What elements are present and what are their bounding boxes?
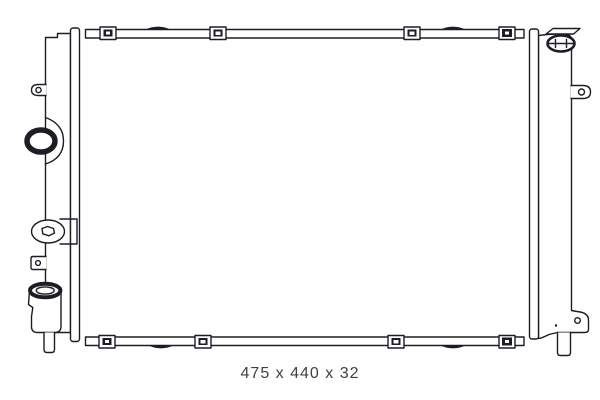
top-header-band: [86, 30, 525, 39]
right-mounting-peg: [558, 333, 571, 356]
bottom-bump: [440, 345, 466, 348]
right-tank-body: [539, 34, 589, 339]
mounting-clip: [499, 336, 515, 349]
radiator-technical-drawing: [0, 0, 600, 400]
mounting-clip: [499, 27, 515, 40]
filler-neck: [27, 130, 55, 152]
left-mounting-bracket: [31, 257, 46, 270]
radiator-diagram-page: 475 x 440 x 32: [0, 0, 600, 400]
top-bump: [145, 27, 171, 30]
right-tank-dot: [555, 324, 557, 326]
radiator-cap: [546, 29, 580, 52]
hose-rim: [30, 284, 60, 298]
left-mounting-ear: [32, 85, 47, 96]
left-side-plate: [71, 28, 80, 342]
dimensions-caption: 475 x 440 x 32: [0, 365, 600, 385]
cap-top-plate: [546, 29, 580, 35]
mounting-clip: [210, 27, 226, 40]
bottom-bump: [148, 345, 174, 348]
right-mounting-ear: [571, 86, 591, 99]
right-tank: [539, 34, 589, 356]
hose-connection: [29, 284, 62, 353]
hose-peg: [44, 333, 55, 353]
mounting-clip: [100, 27, 116, 40]
top-bump: [440, 27, 466, 30]
right-side-plate: [530, 29, 539, 339]
mounting-clip: [388, 336, 404, 349]
bottom-header-band: [86, 337, 525, 346]
mounting-clip: [195, 336, 211, 349]
mounting-clip: [404, 27, 420, 40]
mounting-clip: [99, 336, 115, 349]
